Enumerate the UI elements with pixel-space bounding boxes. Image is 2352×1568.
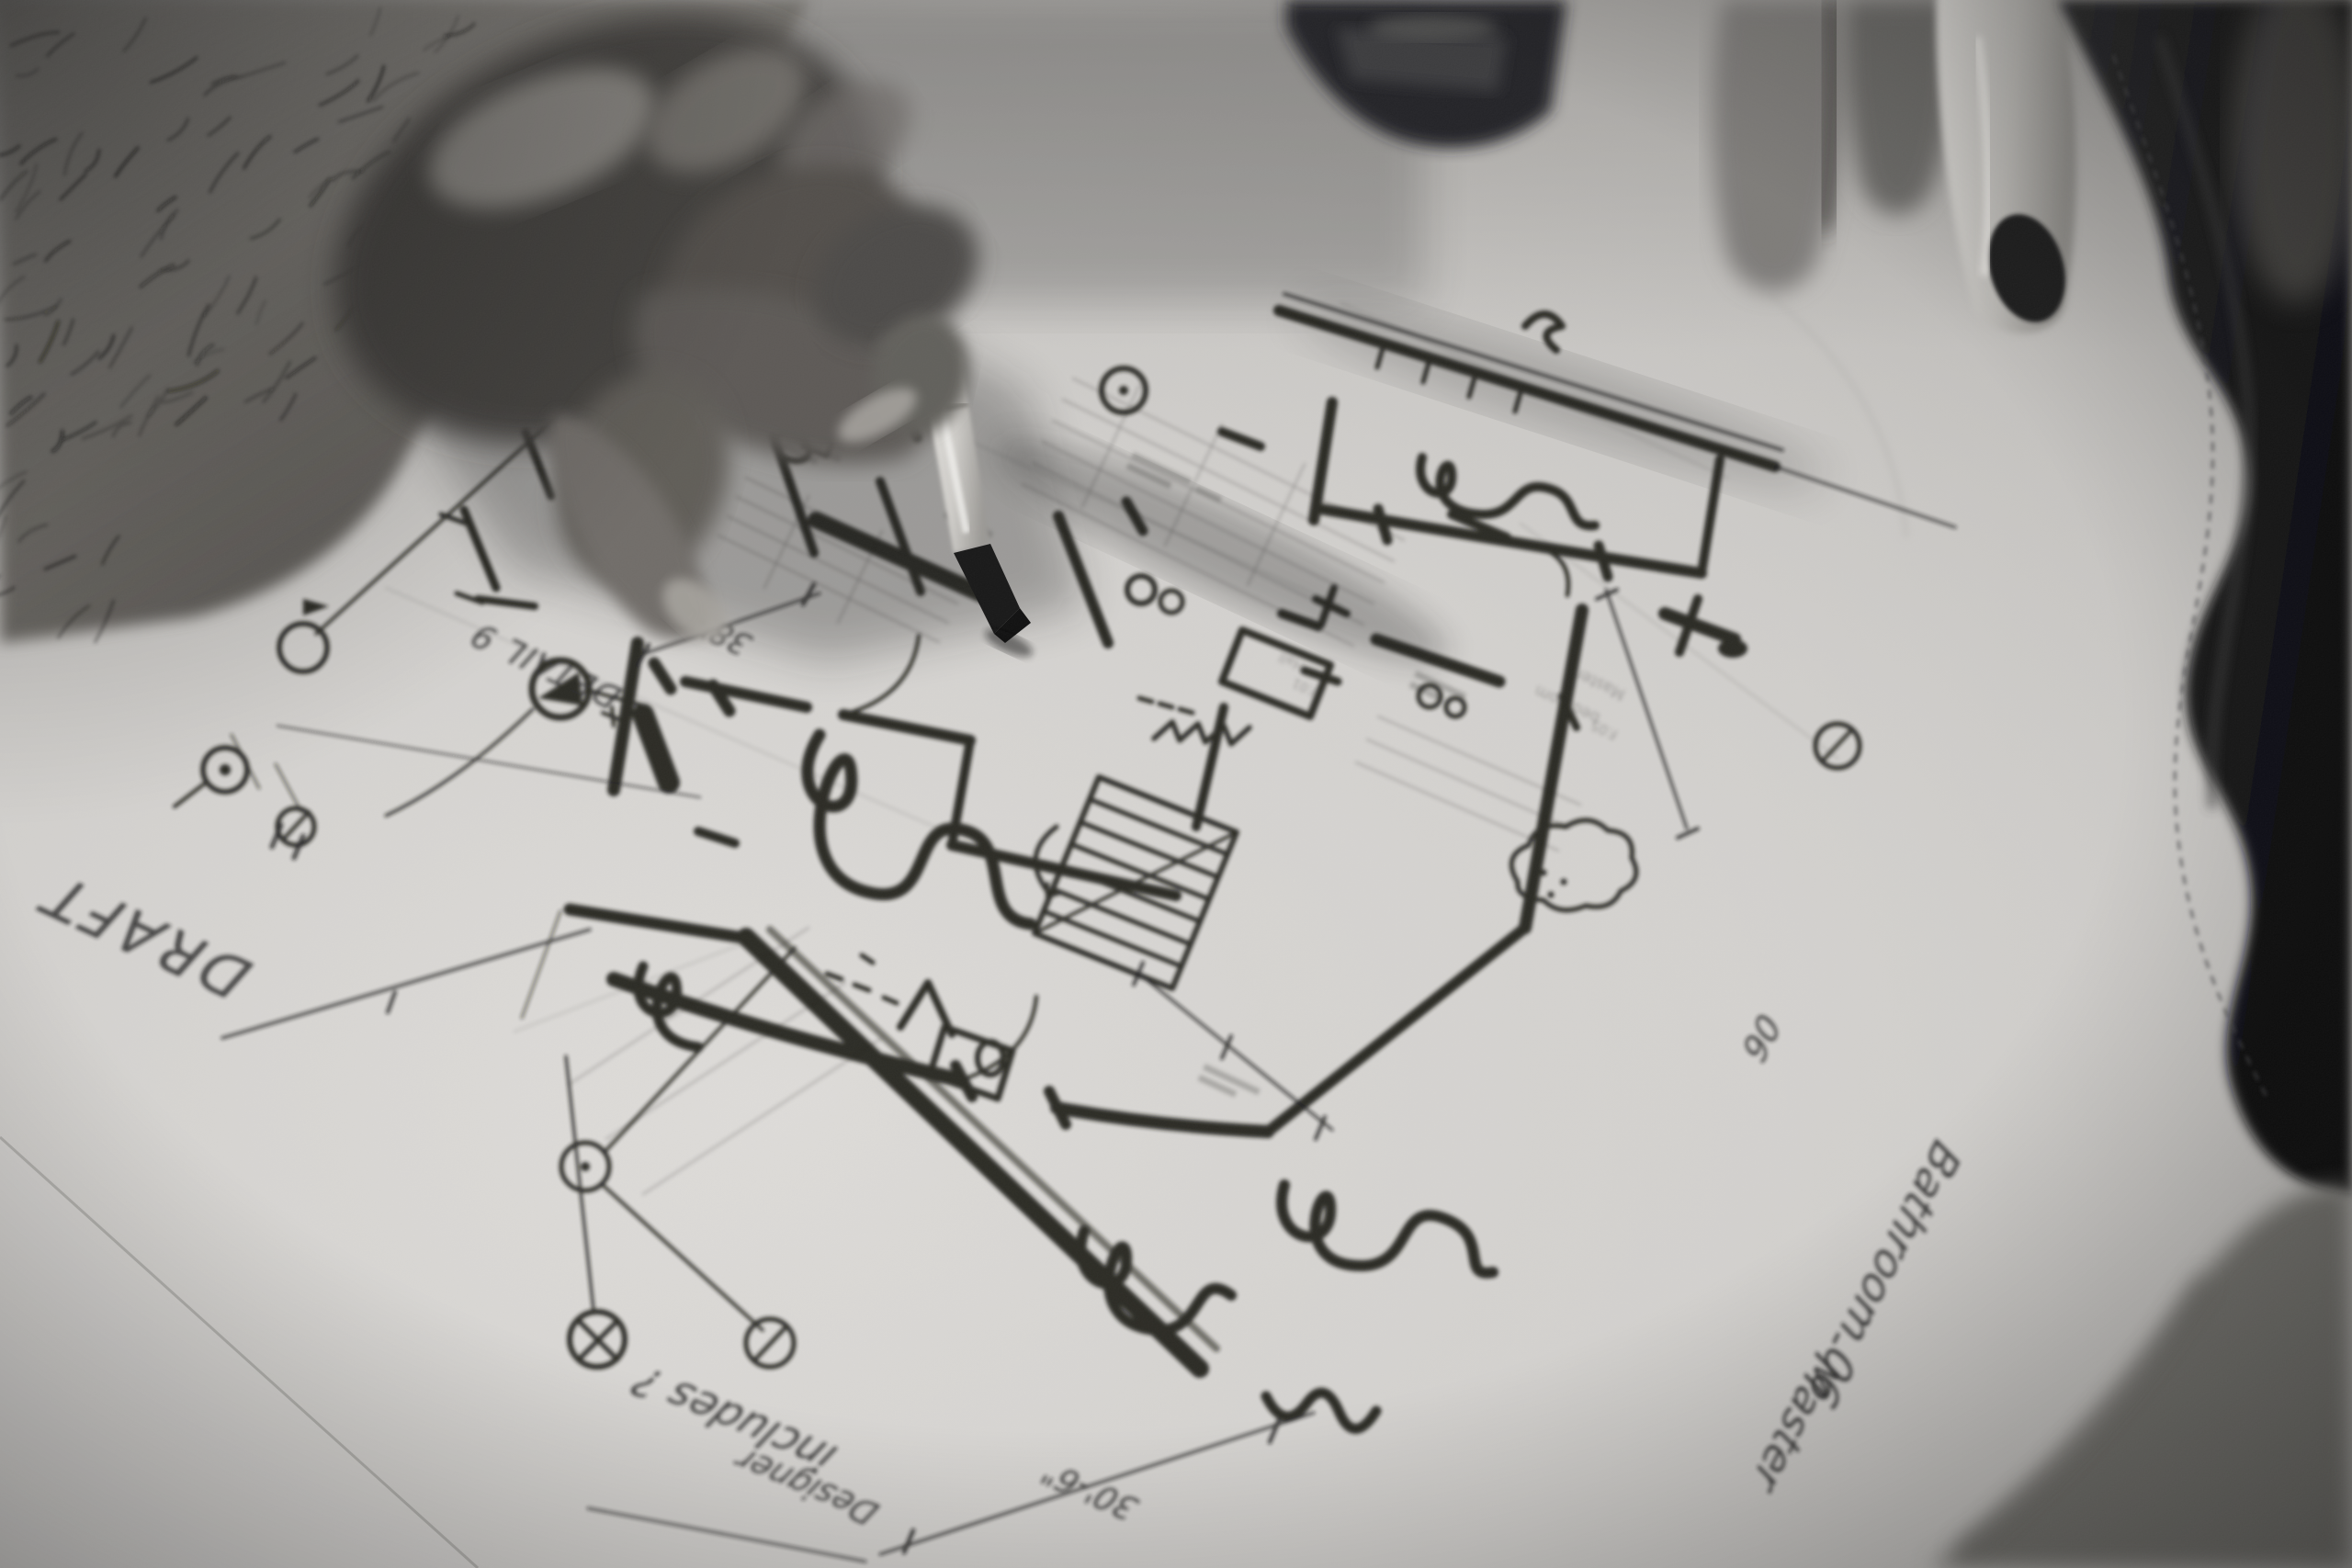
- photograph: Master bedroom F.05 Hall F.01: [0, 0, 2352, 1568]
- photo-canvas: Master bedroom F.05 Hall F.01: [0, 0, 2352, 1568]
- photo-effects: [0, 0, 2352, 1568]
- film-grain: [0, 0, 2352, 1568]
